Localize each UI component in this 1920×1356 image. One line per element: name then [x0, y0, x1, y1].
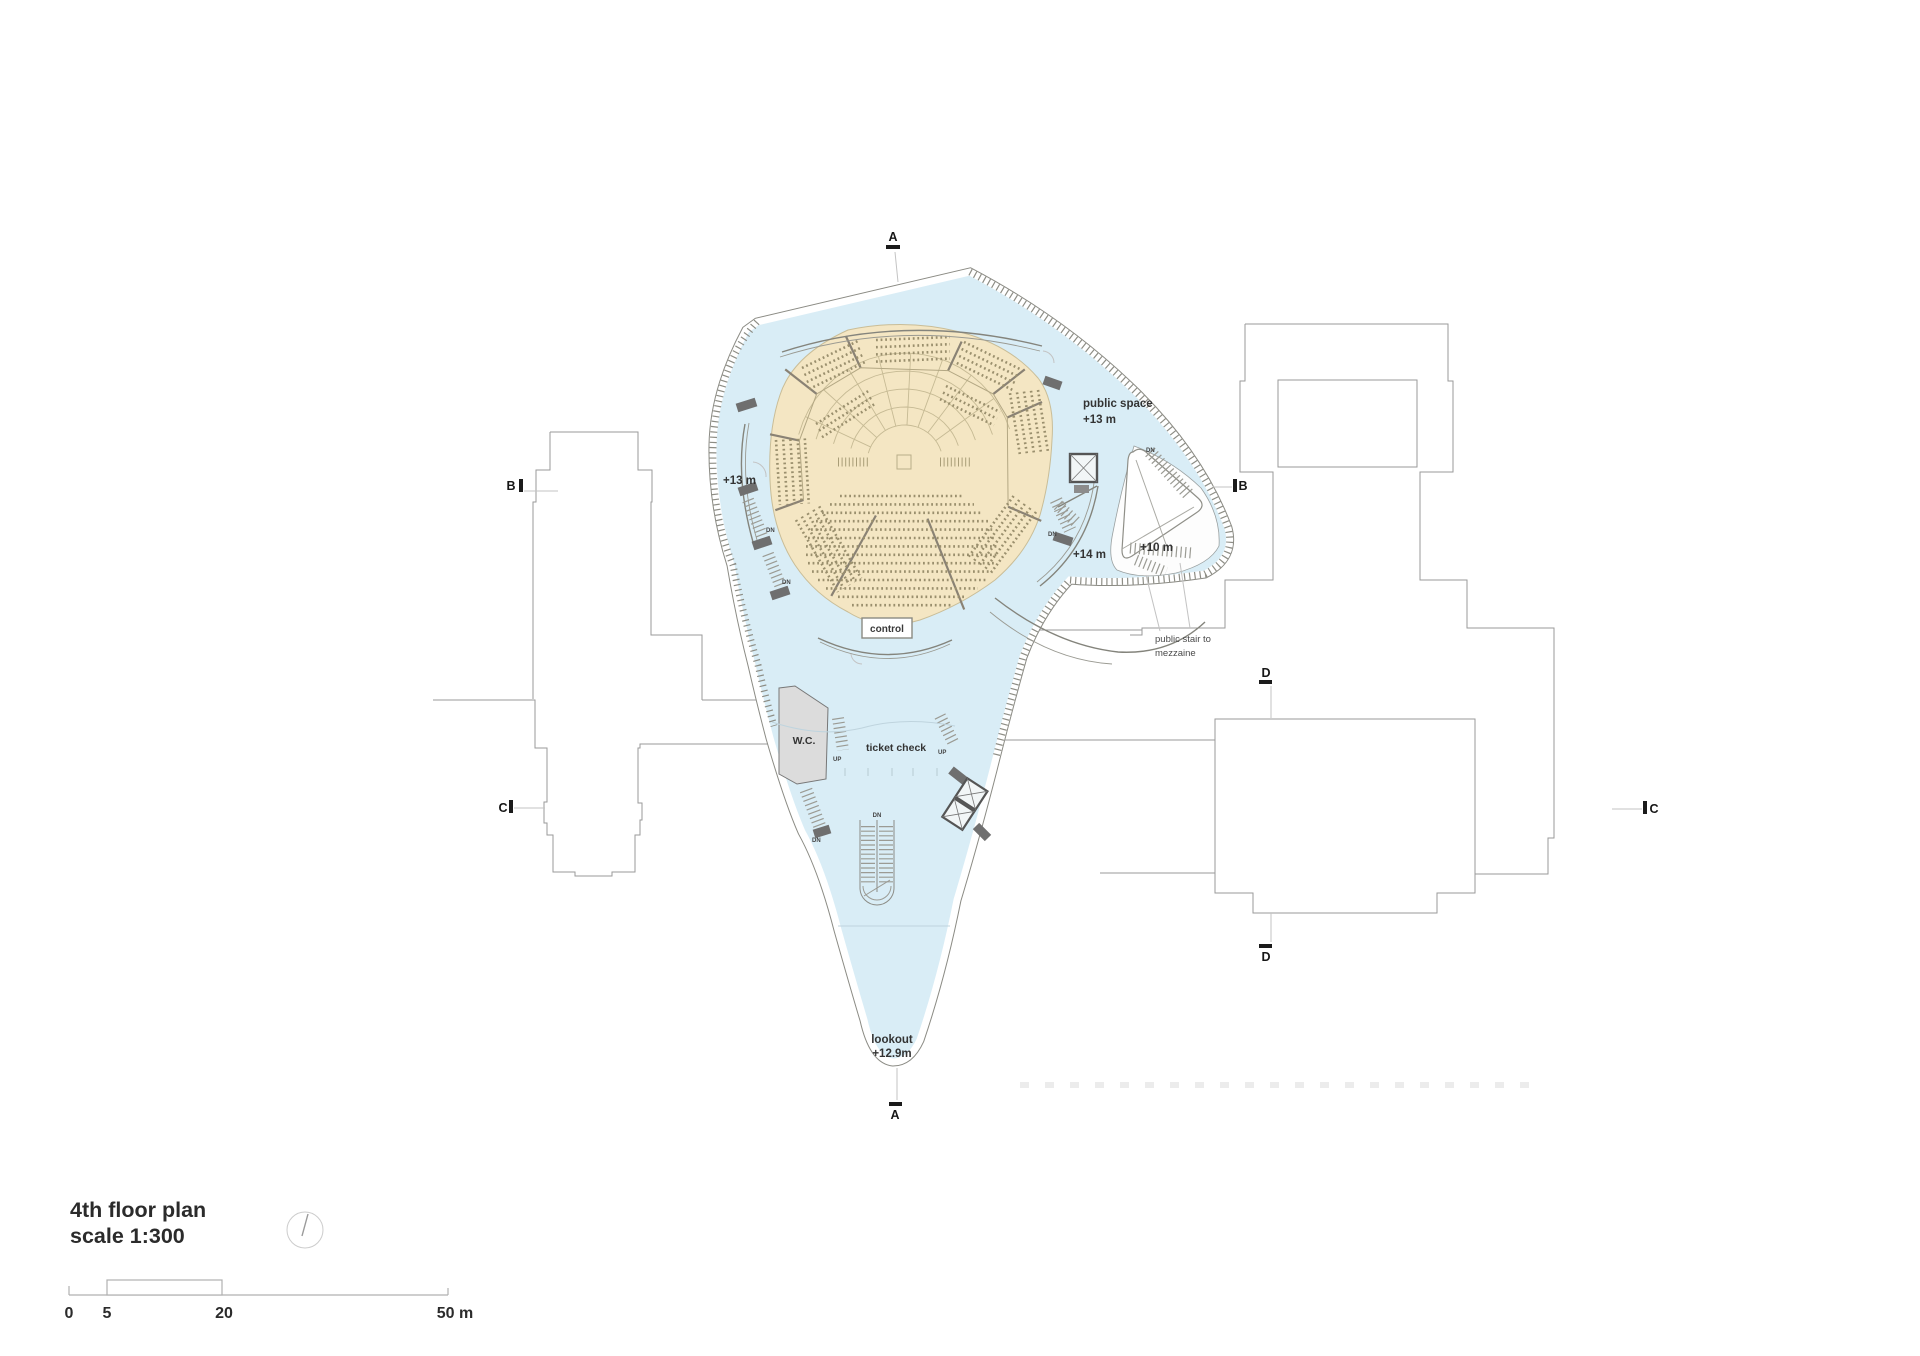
svg-text:C: C [498, 801, 507, 815]
scale-5: 5 [103, 1305, 112, 1322]
dn-tag: DN [1146, 448, 1155, 454]
dn-tag: DN [782, 580, 791, 586]
svg-text:C: C [1649, 802, 1658, 816]
svg-text:B: B [1238, 479, 1247, 493]
right-upper-building-outline [1245, 324, 1554, 874]
section-marker-c-left: C [498, 800, 545, 815]
dn-tag: DN [1048, 532, 1057, 538]
svg-text:D: D [1261, 950, 1270, 964]
ticket-check-label: ticket check [866, 742, 926, 754]
svg-text:A: A [888, 230, 897, 244]
title-block: 4th floor plan scale 1:300 0 5 20 50 m [65, 1198, 474, 1322]
section-marker-b-right: B [1213, 479, 1248, 493]
stair-note-line1: public stair to [1155, 634, 1211, 645]
svg-text:A: A [890, 1108, 899, 1122]
lookout-level: +12.9m [872, 1048, 911, 1060]
public-space-label: public space [1083, 398, 1153, 410]
section-marker-d-top: D [1259, 666, 1272, 718]
section-marker-d-bottom: D [1259, 913, 1272, 964]
control-label: control [870, 624, 904, 635]
section-marker-b-left: B [506, 479, 558, 493]
sheet-title: 4th floor plan [70, 1198, 206, 1222]
right-lower-building-outline [1215, 719, 1475, 913]
level-14-label: +14 m [1073, 549, 1106, 561]
dn-tag: DN [873, 813, 882, 819]
left-building-outline [550, 432, 702, 700]
right-upper-building-court [1278, 380, 1417, 467]
level-10-label: +10 m [1140, 542, 1173, 554]
stair-note-line2: mezzaine [1155, 648, 1196, 659]
scale-50: 50 m [437, 1305, 473, 1322]
dn-tag: DN [812, 838, 821, 844]
floor-plan-sheet: control A A B [0, 0, 1920, 1356]
up-tag: UP [833, 757, 841, 763]
control-room: control [862, 618, 912, 638]
dn-tag: DN [766, 528, 775, 534]
north-arrow [287, 1212, 323, 1248]
public-space-level: +13 m [1083, 414, 1116, 426]
svg-text:D: D [1261, 666, 1270, 680]
level-13-label: +13 m [723, 475, 756, 487]
scale-0: 0 [65, 1305, 74, 1322]
sheet-scale: scale 1:300 [70, 1224, 185, 1248]
svg-text:B: B [506, 479, 515, 493]
lookout-label: lookout [871, 1034, 913, 1046]
section-marker-c-right: C [1612, 801, 1659, 816]
scale-bar: 0 5 20 50 m [65, 1280, 474, 1322]
up-tag: UP [938, 750, 946, 756]
wc-label: W.C. [793, 735, 816, 747]
scale-20: 20 [215, 1305, 233, 1322]
plan-drawing: control A A B [0, 0, 1920, 1356]
section-marker-a-bottom: A [889, 1068, 902, 1122]
section-marker-a-top: A [886, 230, 900, 282]
